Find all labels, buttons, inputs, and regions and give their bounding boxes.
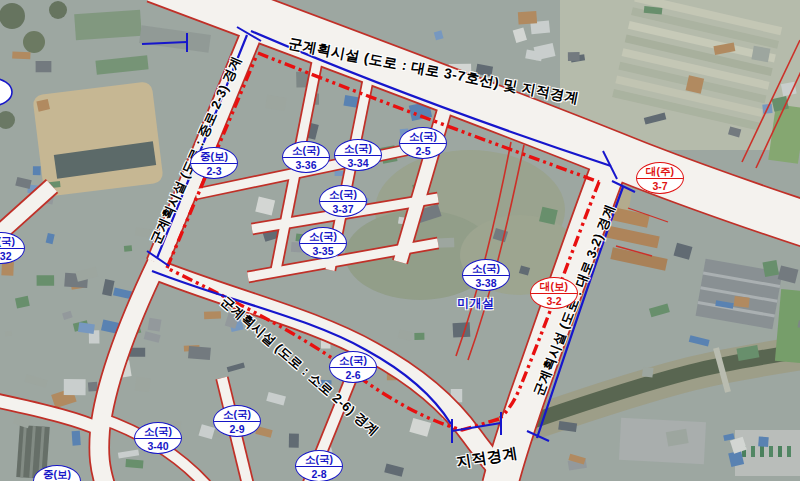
- marker-road-class: 소(국): [320, 186, 366, 202]
- road-marker-2-3: 중(보)2-3: [190, 147, 238, 179]
- marker-road-class: 대(주): [637, 163, 683, 179]
- road-marker-3-40: 소(국)3-40: [134, 422, 182, 454]
- road-marker-2-8: 소(국)2-8: [295, 450, 343, 481]
- marker-road-class: 소(국): [330, 352, 376, 368]
- road-marker-2-5: 소(국)2-5: [399, 127, 447, 159]
- marker-road-class: 소(국): [135, 423, 181, 439]
- marker-road-class: 소(국): [296, 451, 342, 467]
- marker-road-class: 중(보): [191, 148, 237, 164]
- road-marker-3-34: 소(국)3-34: [334, 139, 382, 171]
- road-marker-2-6: 소(국)2-6: [329, 351, 377, 383]
- marker-road-class: 소(국): [283, 142, 329, 158]
- road-marker-3-7: 대(주)3-7: [636, 162, 684, 194]
- road-marker-3-38: 소(국)3-38: [462, 259, 510, 291]
- marker-road-class: 소(국): [214, 406, 260, 422]
- label-unopened-road: 미개설: [457, 297, 495, 309]
- road-marker-3-36: 소(국)3-36: [282, 141, 330, 173]
- marker-road-class: 소(국): [300, 228, 346, 244]
- marker-road-class: 대(보): [531, 278, 577, 294]
- map-canvas: 군계획시설 (도로 : 대로 3-7호선) 및 지적경계 군계획시설 (도로 :…: [0, 0, 800, 481]
- road-marker-3-35: 소(국)3-35: [299, 227, 347, 259]
- marker-road-class: 중(보): [34, 466, 80, 481]
- marker-road-class: 소(국): [463, 260, 509, 276]
- marker-road-class: 소(국): [400, 128, 446, 144]
- road-marker-3-2: 대(보)3-2: [530, 277, 578, 309]
- marker-road-class: 소(국): [335, 140, 381, 156]
- road-marker-2-9: 소(국)2-9: [213, 405, 261, 437]
- road-marker-3-37: 소(국)3-37: [319, 185, 367, 217]
